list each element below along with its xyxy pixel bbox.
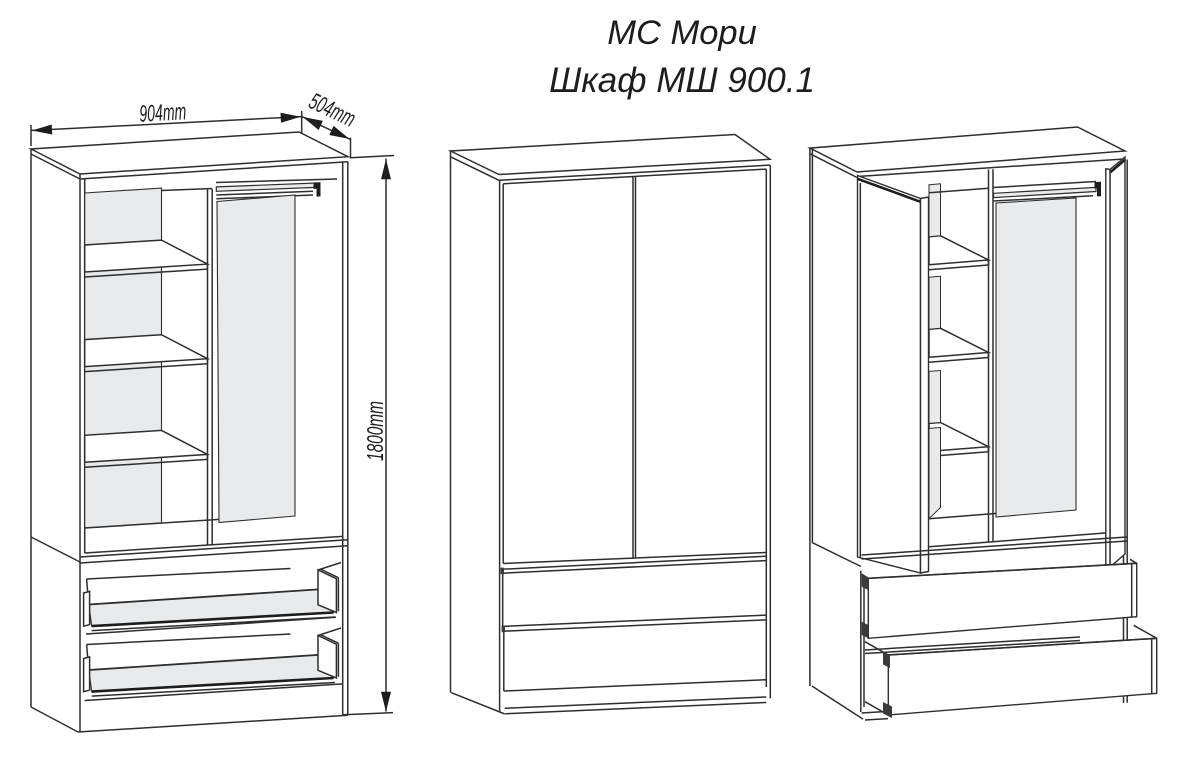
- svg-text:Шкаф МШ 900.1: Шкаф МШ 900.1: [549, 61, 815, 100]
- svg-text:1800mm: 1800mm: [362, 401, 388, 461]
- svg-text:904mm: 904mm: [139, 98, 187, 126]
- svg-text:МС Мори: МС Мори: [607, 14, 757, 52]
